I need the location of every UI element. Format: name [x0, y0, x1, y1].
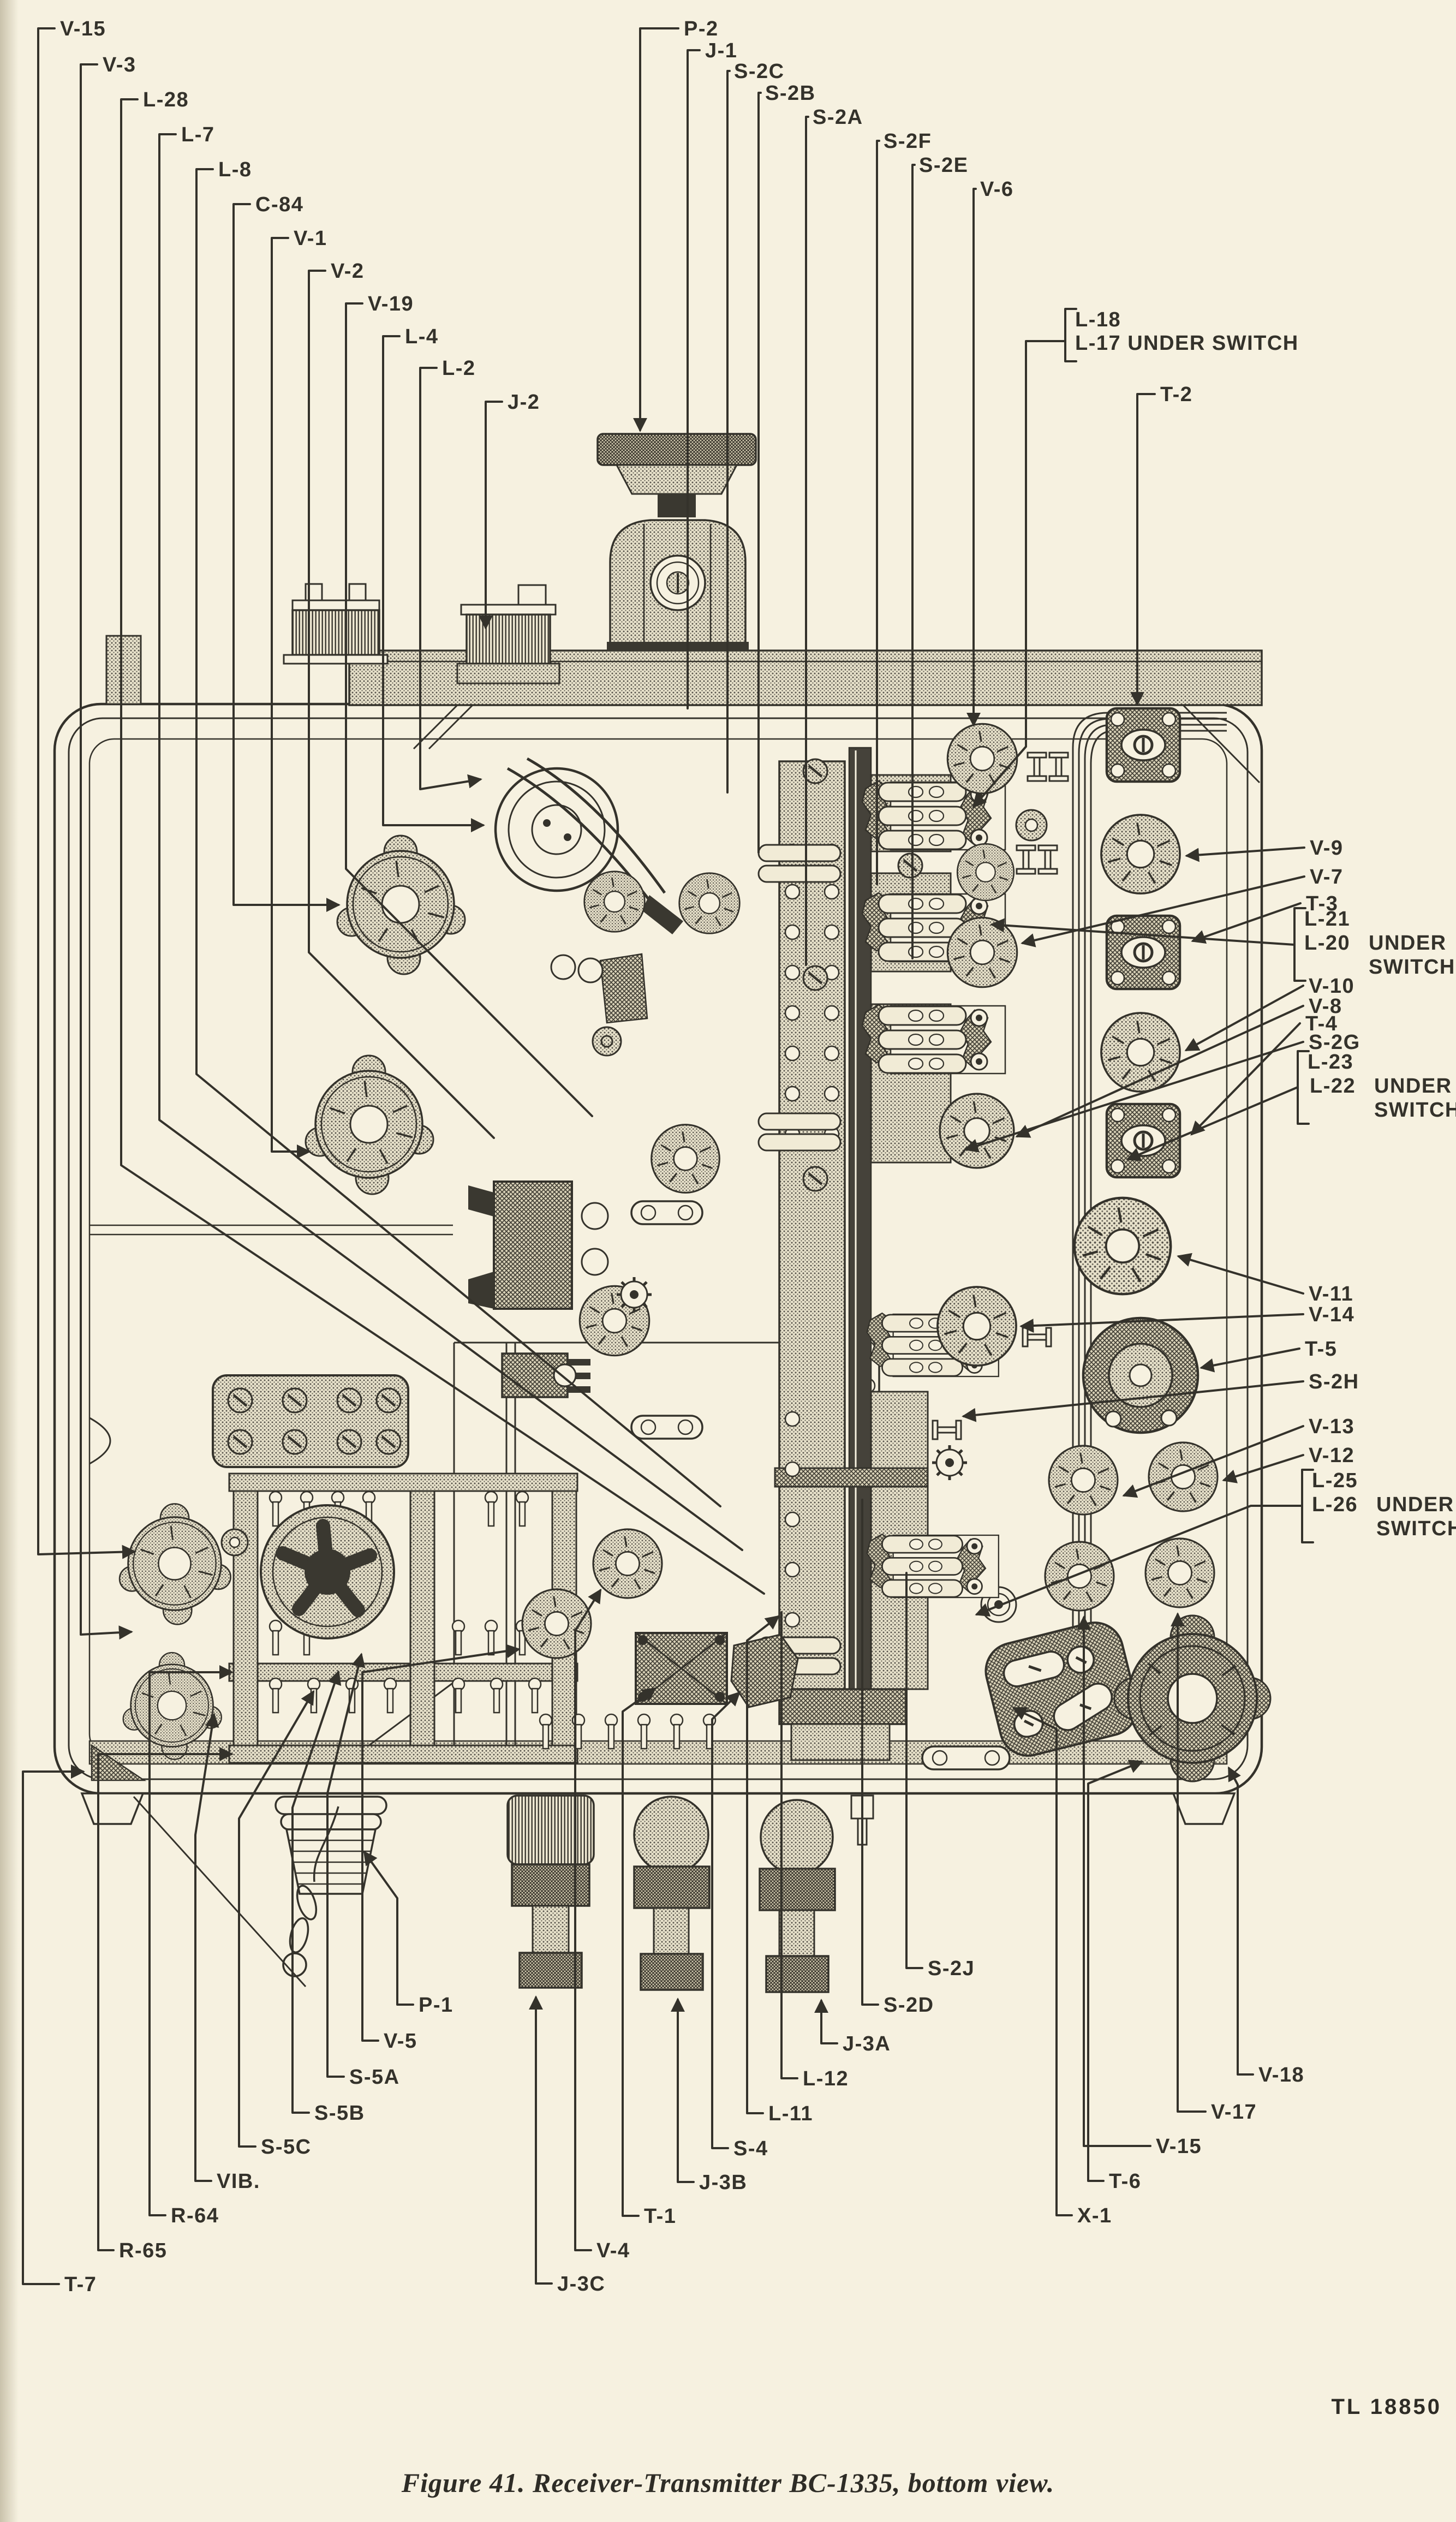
- label-text: L-20: [1304, 932, 1350, 955]
- label-text: V-15: [1156, 2135, 1202, 2158]
- tube-v11: [1075, 1198, 1171, 1294]
- label-text: L-17 UNDER SWITCH: [1075, 332, 1299, 355]
- callout-j-3c: J-3C: [536, 1998, 605, 2296]
- sprocket-washer: [932, 1445, 967, 1480]
- callout-l-21: L-21L-20UNDERSWITCH: [992, 908, 1455, 981]
- label-text: S-2C: [734, 60, 785, 83]
- label-text: L-8: [218, 158, 252, 181]
- label-text: T-5: [1305, 1338, 1337, 1361]
- leader-line: [195, 1715, 214, 2181]
- callout-labels: V-15V-3L-28L-7L-8C-84V-1V-2V-19L-4L-2J-2…: [23, 17, 1456, 2296]
- label-text: J-2: [508, 391, 540, 414]
- leader-line: [640, 28, 678, 430]
- label-text: VIB.: [217, 2170, 260, 2193]
- leader-line: [272, 238, 309, 1152]
- label-text: SWITCH: [1376, 1517, 1456, 1540]
- label-text: S-2A: [813, 106, 863, 129]
- label-text: L-22: [1310, 1075, 1356, 1098]
- label-text: L-21: [1304, 908, 1350, 931]
- tube-v13: [1049, 1446, 1118, 1515]
- leader-line: [821, 2001, 837, 2043]
- label-text: UNDER: [1374, 1075, 1452, 1098]
- label-text: S-2E: [919, 154, 968, 177]
- label-text: L-11: [768, 2102, 813, 2125]
- callout-v-1: V-1: [272, 227, 327, 1152]
- leader-line: [159, 134, 742, 1550]
- label-text: UNDER: [1369, 932, 1447, 955]
- label-text: V-12: [1309, 1444, 1354, 1467]
- jack-j2: [457, 585, 559, 683]
- callout-x-1: X-1: [1014, 1708, 1112, 2227]
- callout-c-84: C-84: [234, 193, 338, 905]
- label-text: V-3: [103, 53, 136, 76]
- leader-line: [81, 64, 131, 1635]
- label-text: V-10: [1309, 975, 1354, 998]
- tube-small-b: [679, 873, 740, 934]
- hinge-block: [106, 636, 141, 704]
- callout-t-7: T-7: [23, 1772, 97, 2296]
- terminal-board: [213, 1375, 408, 1467]
- label-text: C-84: [255, 193, 303, 216]
- plate-number: TL 18850: [1332, 2395, 1442, 2419]
- manual-page: V-15V-3L-28L-7L-8C-84V-1V-2V-19L-4L-2J-2…: [0, 0, 1456, 2522]
- callout-t-6: T-6: [1088, 1762, 1142, 2193]
- label-bracket: [1065, 309, 1076, 361]
- leader-line: [1179, 1256, 1303, 1293]
- leader-line: [365, 1852, 413, 2005]
- transformer-t3: [1107, 916, 1180, 989]
- relay-s4: [731, 1635, 798, 1707]
- callout-j-3a: J-3A: [821, 2001, 891, 2055]
- leader-line: [877, 141, 879, 884]
- label-bracket: [1298, 1051, 1309, 1124]
- label-text: T-2: [1160, 383, 1192, 406]
- callout-v-15: V-15: [38, 17, 134, 1554]
- label-bracket: [1302, 1470, 1313, 1542]
- callout-l-7: L-7: [159, 123, 742, 1550]
- callout-s-2f: S-2F: [877, 130, 932, 884]
- label-text: V-13: [1309, 1415, 1354, 1438]
- callout-l-2: L-2: [420, 357, 480, 789]
- leader-line: [1187, 848, 1304, 856]
- label-text: S-4: [733, 2137, 768, 2160]
- label-text: SWITCH: [1374, 1099, 1456, 1122]
- tube-v14: [938, 1287, 1016, 1366]
- grommet: [582, 1249, 608, 1275]
- callout-v-14: V-14: [1022, 1303, 1354, 1326]
- leader-line: [486, 402, 502, 628]
- label-text: SWITCH: [1369, 956, 1455, 979]
- coil-left-upper: [120, 1504, 231, 1624]
- callout-l-4: L-4: [383, 325, 483, 825]
- label-text: V-2: [331, 260, 365, 283]
- label-text: V-19: [368, 293, 414, 315]
- switch-wafer-s2: [862, 1005, 1005, 1074]
- label-text: V-7: [1310, 866, 1344, 889]
- chassis-outline: [55, 651, 1262, 1987]
- label-text: T-6: [1109, 2170, 1141, 2193]
- label-text: T-7: [64, 2273, 97, 2296]
- tube-v9: [1101, 815, 1180, 893]
- label-text: S-5C: [261, 2136, 312, 2159]
- label-text: J-1: [705, 39, 737, 62]
- callout-l-28: L-28: [121, 88, 764, 1594]
- label-text: V-15: [60, 17, 106, 40]
- label-text: S-5B: [314, 2102, 365, 2125]
- callout-v-9: V-9: [1187, 837, 1344, 860]
- antenna-plug-p2: [598, 434, 756, 651]
- transformer-t2: [1107, 708, 1180, 782]
- label-text: V-4: [596, 2239, 630, 2262]
- label-text: J-3A: [843, 2032, 891, 2055]
- terminal-link: [631, 1201, 702, 1224]
- callout-p-1: P-1: [365, 1852, 453, 2017]
- label-text: S-2H: [1309, 1370, 1359, 1393]
- leader-line: [678, 2000, 694, 2182]
- callout-v-11: V-11: [1179, 1256, 1353, 1305]
- leader-line: [977, 1506, 1302, 1614]
- callout-vib: VIB.: [195, 1715, 260, 2193]
- callout-p-2: P-2: [640, 17, 719, 430]
- coil-l28: [337, 836, 465, 974]
- label-text: S-2B: [765, 82, 816, 105]
- label-text: V-5: [384, 2030, 417, 2053]
- grommet: [582, 1203, 608, 1229]
- label-text: J-3C: [557, 2273, 605, 2296]
- figure-caption: Figure 41. Receiver-Transmitter BC-1335,…: [0, 2467, 1456, 2499]
- terminal-link: [631, 1416, 702, 1439]
- transformer-t5: [1083, 1318, 1198, 1433]
- label-text: V-11: [1309, 1283, 1353, 1305]
- prong-block: [502, 1354, 590, 1397]
- leader-line: [234, 204, 338, 905]
- leader-line: [383, 336, 483, 825]
- label-text: S-2D: [884, 1994, 934, 2017]
- callout-v-6: V-6: [974, 178, 1014, 725]
- label-text: R-64: [171, 2204, 219, 2227]
- leader-line: [1229, 1768, 1253, 2074]
- label-text: S-2J: [928, 1957, 975, 1980]
- label-text: V-9: [1310, 837, 1344, 860]
- tube-small-a: [584, 872, 645, 932]
- tube-v15: [1045, 1542, 1114, 1611]
- label-text: S-5A: [349, 2066, 400, 2089]
- callout-s-5b: S-5B: [293, 1672, 365, 2125]
- connector-j3b: [634, 1797, 709, 1990]
- tube-v8: [940, 1094, 1014, 1168]
- label-text: P-2: [684, 17, 719, 40]
- label-text: V-1: [294, 227, 327, 250]
- scan-edge-shadow: [0, 0, 19, 2522]
- relay: [468, 1182, 572, 1309]
- label-text: P-1: [419, 1994, 453, 2017]
- link-bar: [922, 1746, 1010, 1769]
- label-text: L-7: [181, 123, 215, 146]
- coil-v1: [306, 1056, 433, 1194]
- label-text: L-23: [1308, 1051, 1353, 1074]
- label-text: L-25: [1312, 1469, 1358, 1492]
- leader-line: [1202, 1349, 1299, 1368]
- leader-line: [623, 1689, 655, 2216]
- label-text: L-12: [803, 2067, 849, 2090]
- leader-line: [98, 1754, 231, 2250]
- leader-line: [1088, 1762, 1142, 2181]
- label-text: V-14: [1309, 1303, 1354, 1326]
- tube-mid-a: [652, 1125, 720, 1193]
- label-text: L-26: [1312, 1493, 1358, 1516]
- label-text: V-17: [1211, 2101, 1257, 2124]
- leader-line: [575, 1590, 600, 2250]
- sprocket-washer: [617, 1277, 652, 1312]
- tube-v17: [1145, 1539, 1214, 1607]
- label-text: L-28: [143, 88, 189, 111]
- coil-can-top-left: [284, 584, 387, 664]
- transformer-t4: [1107, 1104, 1180, 1177]
- callout-t-5: T-5: [1202, 1338, 1337, 1368]
- label-text: L-4: [405, 325, 439, 348]
- label-text: X-1: [1077, 2204, 1112, 2227]
- connector-j3c: [508, 1796, 594, 1988]
- callout-v-18: V-18: [1229, 1768, 1304, 2086]
- leader-line: [121, 99, 764, 1594]
- leader-line: [1186, 986, 1303, 1050]
- label-text: T-1: [644, 2205, 676, 2228]
- leader-line: [974, 189, 976, 725]
- label-text: J-3B: [699, 2171, 747, 2194]
- leader-line: [1192, 1023, 1300, 1134]
- label-text: S-2F: [884, 130, 932, 153]
- label-text: R-65: [119, 2239, 167, 2262]
- leader-line: [1224, 1455, 1303, 1480]
- leader-line: [420, 368, 480, 789]
- label-text: UNDER: [1376, 1493, 1454, 1516]
- tube-v4: [593, 1529, 662, 1598]
- tube-v12: [1149, 1442, 1218, 1511]
- label-text: V-18: [1258, 2064, 1304, 2086]
- leader-line: [1014, 1708, 1072, 2215]
- label-text: L-18: [1075, 308, 1121, 331]
- leader-line: [38, 28, 134, 1554]
- switch-wafer-s2: [867, 1534, 999, 1597]
- label-bracket: [1294, 908, 1305, 981]
- leader-line: [536, 1998, 552, 2283]
- label-text: V-6: [980, 178, 1014, 201]
- connector-j3a: [760, 1800, 835, 1992]
- leader-line: [23, 1772, 83, 2284]
- figure-drawing: V-15V-3L-28L-7L-8C-84V-1V-2V-19L-4L-2J-2…: [0, 0, 1456, 2522]
- tube-v7: [947, 917, 1017, 987]
- tube-v6: [947, 724, 1017, 793]
- tube-mid-c: [957, 844, 1014, 901]
- label-text: L-2: [442, 357, 476, 380]
